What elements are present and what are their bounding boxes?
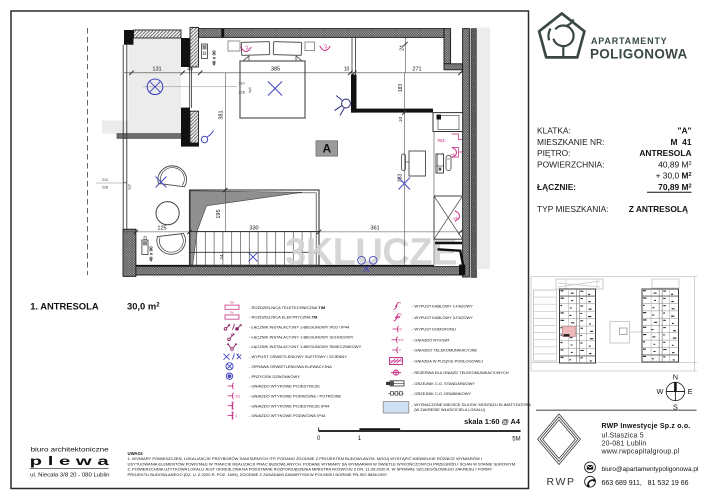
svg-text:skala 1:60 @ A4: skala 1:60 @ A4 [464, 417, 521, 426]
svg-text:131: 131 [152, 66, 161, 72]
svg-text:5M: 5M [512, 437, 520, 443]
svg-text:195: 195 [216, 209, 222, 218]
svg-text:RWP: RWP [547, 476, 576, 488]
svg-text:- WYPUST KABLOWY 3-FAZOWY: - WYPUST KABLOWY 3-FAZOWY [412, 315, 473, 320]
svg-text:POWIERZCHNIA:: POWIERZCHNIA: [537, 160, 604, 170]
svg-text:- WYZNACZONE MIEJSCE DLA EW. M: - WYZNACZONE MIEJSCE DLA EW. MONTAŻU KLI… [412, 402, 531, 407]
svg-text:- GRZEJNIK C.O. STANDARDOWY: - GRZEJNIK C.O. STANDARDOWY [412, 381, 475, 386]
svg-text:20-081 Lublin: 20-081 Lublin [602, 440, 647, 447]
svg-text:40,89 M2: 40,89 M2 [658, 160, 691, 170]
svg-text:(W ZAKRESIE WŁAŚCICIELA LOKALU: (W ZAKRESIE WŁAŚCICIELA LOKALU) [414, 407, 486, 412]
svg-text:210: 210 [102, 178, 108, 182]
svg-text:ANTRESOLA: ANTRESOLA [639, 148, 691, 158]
svg-text:24: 24 [219, 254, 224, 260]
svg-text:361: 361 [370, 226, 379, 232]
svg-text:- WYPUST DOMOFONU: - WYPUST DOMOFONU [412, 327, 456, 332]
svg-text:M 41: M 41 [671, 137, 692, 147]
svg-text:1: 1 [358, 436, 362, 442]
svg-text:p l e w a: p l e w a [30, 456, 110, 468]
svg-text:10: 10 [398, 117, 403, 123]
svg-text:- GNIAZDO WTYKOWE PODWÓJNE / P: - GNIAZDO WTYKOWE PODWÓJNE / POTRÓJNE [249, 393, 342, 398]
svg-text:KLATKA:: KLATKA: [537, 126, 571, 136]
svg-text:+ 30,0 M2: + 30,0 M2 [656, 171, 692, 181]
svg-text:- GRZEJNIK C.O. DRABINKOWY: - GRZEJNIK C.O. DRABINKOWY [412, 391, 471, 396]
svg-text:PIĘTRO:: PIĘTRO: [537, 148, 571, 158]
svg-text:110: 110 [239, 82, 245, 86]
svg-text:183: 183 [398, 84, 404, 93]
svg-text:228: 228 [102, 186, 108, 190]
svg-text:- GNIAZDO TELEKOMUNIKACYJNE: - GNIAZDO TELEKOMUNIKACYJNE [412, 348, 477, 353]
svg-text:W: W [657, 387, 664, 396]
svg-text:385: 385 [271, 66, 280, 72]
svg-text:APARTAMENTY: APARTAMENTY [591, 36, 667, 46]
svg-text:www.rwpcapitalgroup.pl: www.rwpcapitalgroup.pl [601, 448, 680, 455]
svg-text:PROJEKTU BUDOWLANEGO (DZ. U. Z: PROJEKTU BUDOWLANEGO (DZ. U. Z 2020 R. P… [128, 472, 388, 477]
svg-text:2: 2 [235, 414, 237, 418]
svg-text:- ROZDZIELNICA ELEKTRYCZNA TM: - ROZDZIELNICA ELEKTRYCZNA TM [249, 315, 318, 320]
svg-text:T: T [399, 348, 401, 352]
svg-text:A: A [322, 142, 331, 156]
svg-text:2/3: 2/3 [235, 394, 240, 398]
svg-text:- OPRAWA OŚWIETLENIOWA ELEWACY: - OPRAWA OŚWIETLENIOWA ELEWACYJNA [249, 364, 332, 369]
svg-text:30,0 m2: 30,0 m2 [127, 301, 160, 312]
svg-text:40 x 90: 40 x 90 [212, 50, 217, 66]
svg-text:MIESZKANIE NR:: MIESZKANIE NR: [537, 137, 604, 147]
svg-text:- GNIAZDO WTYKOWE POJEDYNCZE I: - GNIAZDO WTYKOWE POJEDYNCZE IP44 [249, 403, 330, 408]
svg-text:UWAGI:: UWAGI: [128, 451, 145, 456]
svg-text:381: 381 [218, 110, 224, 119]
svg-text:- GNIAZDA W PUSZCE PODŁOGOWEJ: - GNIAZDA W PUSZCE PODŁOGOWEJ [412, 359, 483, 364]
svg-text:- GNIAZDO RTV/SAT: - GNIAZDO RTV/SAT [412, 337, 450, 342]
svg-text:hp0: hp0 [248, 87, 252, 93]
svg-text:TM: TM [230, 310, 234, 314]
svg-text:- GNIAZDO WTYKOWE PODWÓJNE IP4: - GNIAZDO WTYKOWE PODWÓJNE IP44 [249, 413, 326, 418]
svg-text:rez.: rez. [438, 138, 447, 144]
svg-text:0: 0 [317, 436, 321, 442]
svg-text:10: 10 [344, 66, 350, 72]
svg-text:663 689 911, 81 532 19 66: 663 689 911, 81 532 19 66 [602, 480, 689, 487]
svg-text:40 x 90: 40 x 90 [149, 246, 154, 262]
svg-text:RTV: RTV [399, 338, 404, 342]
svg-text:TYP MIESZKANIA:: TYP MIESZKANIA: [537, 204, 609, 214]
svg-text:N: N [673, 373, 678, 382]
svg-text:f: f [400, 301, 401, 305]
svg-text:- WYPUST KABLOWY 1-FAZOWY: - WYPUST KABLOWY 1-FAZOWY [412, 304, 473, 309]
svg-text:- WYPUST OŚWIETLENIOWY SUFITOW: - WYPUST OŚWIETLENIOWY SUFITOWY / ŚCIENN… [249, 354, 347, 359]
svg-text:biuro architektoniczne: biuro architektoniczne [31, 447, 110, 454]
svg-text:3KLUCZE: 3KLUCZE [285, 232, 457, 274]
svg-text:- ŁĄCZNIK INSTALACYJNY 1-BIEGU: - ŁĄCZNIK INSTALACYJNY 1-BIEGUNOWY IP20 … [249, 325, 350, 330]
svg-text:- ŁĄCZNIK INSTALACYJNY 1-BIEGU: - ŁĄCZNIK INSTALACYJNY 1-BIEGUNOWY ŚWIEC… [249, 344, 362, 349]
svg-text:- ŁĄCZNIK INSTALACYJNY 1-BIEGU: - ŁĄCZNIK INSTALACYJNY 1-BIEGUNOWY SCHOD… [249, 334, 354, 339]
svg-text:E: E [688, 387, 693, 396]
svg-text:RWP Inwestycje Sp.z o.o.: RWP Inwestycje Sp.z o.o. [602, 423, 691, 430]
svg-text:- REZERWA DLA GNIAZD TELEKOMUN: - REZERWA DLA GNIAZD TELEKOMUNIKACYJNYCH [412, 370, 509, 375]
svg-text:hp0: hp0 [128, 184, 132, 190]
svg-text:1. ANTRESOLA: 1. ANTRESOLA [30, 301, 99, 312]
svg-text:ul.Staszica 5: ul.Staszica 5 [602, 432, 644, 439]
svg-text:125: 125 [157, 226, 166, 232]
svg-text:45: 45 [187, 66, 193, 72]
svg-text:228: 228 [239, 91, 245, 95]
svg-text:ul. Niecała 3/8 20 - 080 Lubl: ul. Niecała 3/8 20 - 080 Lublin [30, 472, 109, 478]
svg-text:271: 271 [412, 66, 421, 72]
svg-text:330: 330 [249, 226, 258, 232]
svg-text:2: 2 [450, 152, 457, 157]
svg-text:D: D [400, 327, 403, 331]
svg-text:24: 24 [399, 45, 405, 51]
svg-text:2: 2 [324, 44, 329, 51]
svg-text:ŁĄCZNIE:: ŁĄCZNIE: [537, 182, 576, 192]
svg-text:biuro@apartamentypoligonowa.pl: biuro@apartamentypoligonowa.pl [602, 466, 699, 473]
svg-text:f₃: f₃ [400, 312, 403, 316]
svg-text:- GNIAZDO WTYKOWE POJEDYNCZE: - GNIAZDO WTYKOWE POJEDYNCZE [249, 384, 320, 389]
svg-text:- ROZDZIELNICA TELETECHNICZNA: - ROZDZIELNICA TELETECHNICZNA TIM [249, 305, 326, 310]
svg-text:"A": "A" [678, 126, 692, 136]
svg-text:POLIGONOWA: POLIGONOWA [590, 47, 688, 62]
svg-text:TIM: TIM [229, 301, 233, 305]
svg-text:- PRZYCISK DZWONKOWY: - PRZYCISK DZWONKOWY [249, 374, 300, 379]
svg-text:70,89 M2: 70,89 M2 [658, 182, 691, 192]
svg-text:Z ANTRESOLĄ: Z ANTRESOLĄ [629, 204, 688, 214]
